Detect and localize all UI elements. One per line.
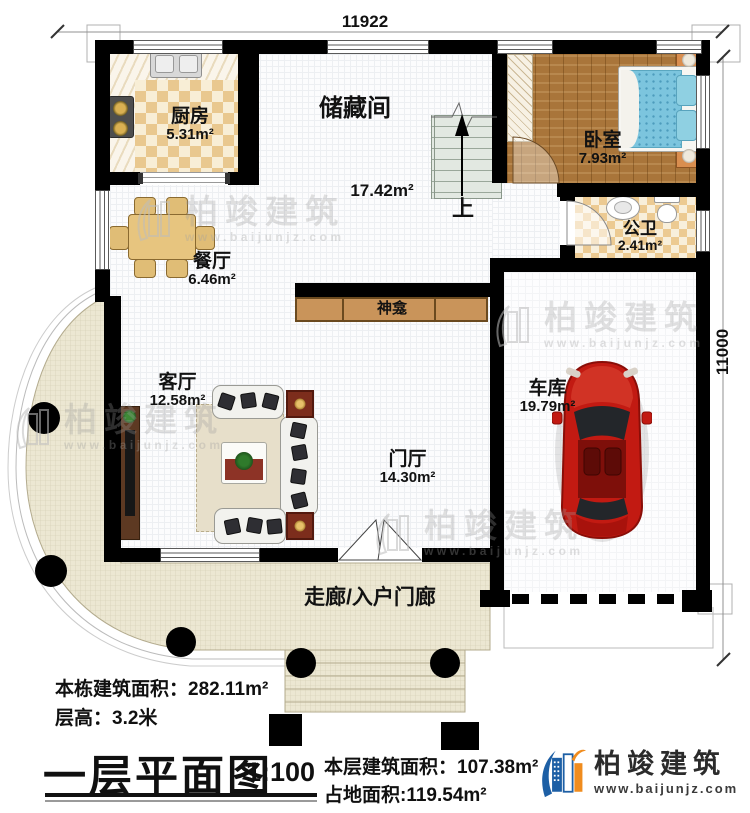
bed-pillow [676, 75, 697, 106]
room-area: 12.58m² [135, 393, 220, 410]
lamp [682, 149, 696, 163]
window [696, 75, 710, 149]
tv [125, 430, 135, 516]
window [327, 40, 429, 54]
window [497, 40, 553, 54]
sofa-pillow [291, 444, 308, 461]
room-label-foyer: 门厅 14.30m² [365, 449, 450, 487]
wall-segment [557, 183, 696, 197]
floor-height-line: 层高：3.2米 [55, 703, 157, 730]
driveway-outline [504, 607, 713, 648]
sofa-bottom [214, 508, 286, 544]
building-area-label: 本栋建筑面积： [55, 679, 188, 700]
land-area-line: 占地面积:119.54m² [324, 780, 487, 807]
sofa-top [212, 385, 284, 419]
porch-pier [441, 722, 479, 750]
table-medallion [295, 521, 306, 532]
brand-website: www.baijunjz.com [594, 781, 738, 796]
wall-segment [238, 54, 259, 185]
window [696, 210, 710, 252]
lamp [682, 53, 696, 67]
wall-segment [104, 296, 121, 562]
room-label-dining: 餐厅 6.46m² [172, 251, 252, 289]
porch-column [430, 648, 460, 678]
room-area: 6.46m² [172, 272, 252, 289]
building-area-line: 本栋建筑面积：282.11m² [55, 674, 268, 701]
sofa-pillow [290, 491, 308, 509]
dimension-top: 11922 [335, 12, 395, 32]
wall-segment [682, 590, 712, 612]
bathroom-door-opening [560, 201, 575, 245]
land-area-value: 119.54m² [406, 785, 486, 806]
room-label-living: 客厅 12.58m² [135, 372, 220, 410]
dining-chair [109, 226, 129, 250]
plant-small [123, 410, 136, 423]
sofa-pillow [266, 518, 282, 534]
room-name: 餐厅 [172, 251, 252, 272]
table-medallion [295, 399, 306, 410]
entrance-door-opening [338, 548, 422, 562]
sofa-pillow [240, 392, 257, 409]
level-area-label: 本层建筑面积： [324, 757, 457, 778]
brand-name: 柏竣建筑 [594, 751, 738, 778]
floor-height-label: 层高： [55, 708, 112, 729]
window [656, 40, 702, 54]
dining-chair [134, 259, 156, 278]
sofa-pillow [246, 517, 263, 534]
wall-segment [490, 258, 504, 592]
room-area: 17.42m² [342, 181, 422, 200]
building-area-value: 282.11m² [188, 679, 268, 700]
room-label-bathroom: 公卫 2.41m² [600, 219, 680, 254]
room-name: 神龛 [342, 301, 442, 318]
sofa-pillow [261, 392, 279, 410]
room-label-porch: 走廊/入户门廊 [255, 586, 485, 610]
room-name: 车库 [505, 378, 590, 399]
sofa-pillow [290, 422, 308, 440]
level-area-value: 107.38m² [457, 757, 538, 778]
room-name: 客厅 [135, 372, 220, 393]
room-label-storage: 储藏间 [300, 96, 410, 123]
kitchen-sliding-door [140, 172, 228, 185]
sofa-pillow [290, 468, 307, 485]
room-name: 储藏间 [300, 96, 410, 123]
end-table [286, 390, 314, 418]
sofa-pillow [224, 518, 242, 536]
room-name: 公卫 [600, 219, 680, 238]
room-name: 厨房 [150, 106, 230, 127]
sink-basin-left [155, 55, 174, 73]
room-area: 2.41m² [600, 238, 680, 254]
stairs-up-label: 上 [448, 197, 478, 222]
stove-burner-2 [113, 121, 128, 136]
porch-column [35, 555, 67, 587]
room-label-bedroom: 卧室 7.93m² [560, 130, 645, 168]
room-name: 走廊/入户门廊 [255, 586, 485, 610]
wardrobe [507, 54, 533, 142]
brand-logo-icon [536, 744, 586, 802]
room-name: 卧室 [560, 130, 645, 151]
window [95, 190, 110, 270]
drawing-scale: 1:100 [246, 757, 315, 788]
sofa-right [280, 416, 318, 516]
room-area: 7.93m² [560, 151, 645, 168]
porch-column [166, 627, 196, 657]
dimension-right: 11000 [713, 322, 733, 382]
sink-bowl [614, 201, 632, 214]
floor-height-value: 3.2米 [112, 708, 157, 729]
room-label-garage: 车库 19.79m² [505, 378, 590, 416]
room-label-kitchen: 厨房 5.31m² [150, 106, 230, 144]
room-area: 14.30m² [365, 470, 450, 487]
room-area-storage: 17.42m² [342, 181, 422, 200]
land-area-label: 占地面积: [324, 785, 406, 806]
wall-segment [295, 283, 490, 297]
porch-pier [269, 714, 302, 746]
wall-segment [490, 258, 710, 272]
room-label-shrine: 神龛 [342, 301, 442, 318]
room-area: 5.31m² [150, 127, 230, 144]
stairs-up-text: 上 [448, 197, 478, 222]
porch-column [28, 402, 60, 434]
room-area: 19.79m² [505, 399, 590, 416]
wall-segment [492, 54, 507, 183]
title-underline-2 [45, 800, 317, 802]
level-area-line: 本层建筑面积：107.38m² [324, 752, 538, 779]
floor-plan-canvas: 柏竣建筑 www.baijunjz.com 柏竣建筑 www.baijunjz.… [0, 0, 750, 813]
stove-burner-1 [113, 101, 128, 116]
bed-pillow [676, 110, 697, 141]
end-table [286, 512, 314, 540]
plant [235, 452, 253, 470]
porch-column [286, 648, 316, 678]
sink-basin-right [179, 55, 198, 73]
garage-door-dashed [512, 594, 682, 604]
brand-logo: 柏竣建筑 www.baijunjz.com [536, 744, 738, 802]
window [160, 548, 260, 562]
dining-chair [195, 226, 215, 250]
room-name: 门厅 [365, 449, 450, 470]
window [133, 40, 223, 54]
title-underline [45, 793, 317, 797]
